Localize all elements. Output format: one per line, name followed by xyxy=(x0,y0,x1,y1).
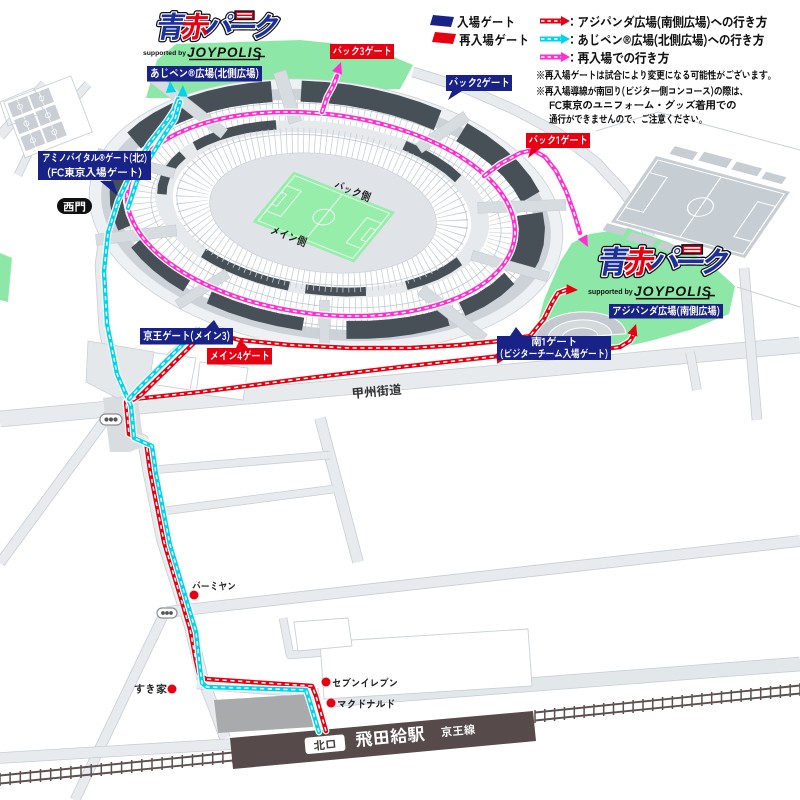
svg-text:JOYPOLIS: JOYPOLIS xyxy=(634,283,712,299)
svg-text:JOYPOLIS: JOYPOLIS xyxy=(187,45,263,60)
svg-text:supported by: supported by xyxy=(588,289,633,296)
svg-text:supported by: supported by xyxy=(143,50,186,57)
